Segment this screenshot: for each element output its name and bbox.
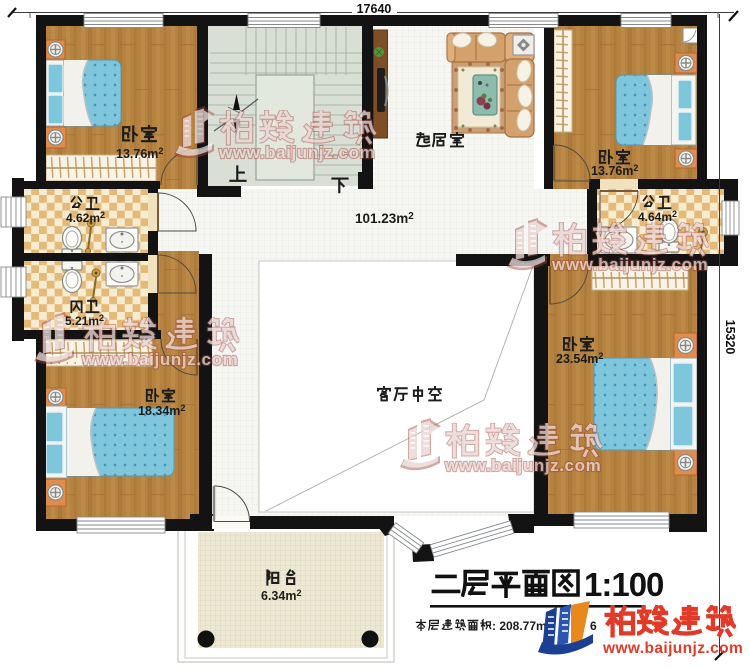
svg-text:6: 6 xyxy=(590,619,597,633)
svg-text:www.baijunjz.com: www.baijunjz.com xyxy=(602,640,743,657)
svg-text:101.23m2: 101.23m2 xyxy=(355,211,414,226)
svg-text:15320: 15320 xyxy=(723,320,737,355)
svg-text:6.34m2: 6.34m2 xyxy=(261,588,301,603)
svg-text:13.76m2: 13.76m2 xyxy=(591,163,638,178)
svg-text:17640: 17640 xyxy=(357,2,392,16)
svg-text:1:100: 1:100 xyxy=(584,566,663,603)
svg-text:18.34m2: 18.34m2 xyxy=(138,403,185,418)
svg-text:23.54m2: 23.54m2 xyxy=(556,351,603,366)
svg-text:13.76m2: 13.76m2 xyxy=(116,146,163,161)
svg-text:4.64m2: 4.64m2 xyxy=(638,209,677,224)
svg-text:4.62m2: 4.62m2 xyxy=(66,210,105,225)
svg-text:5.21m2: 5.21m2 xyxy=(65,313,104,328)
svg-text:: 208.77m2: : 208.77m2 xyxy=(492,618,552,633)
